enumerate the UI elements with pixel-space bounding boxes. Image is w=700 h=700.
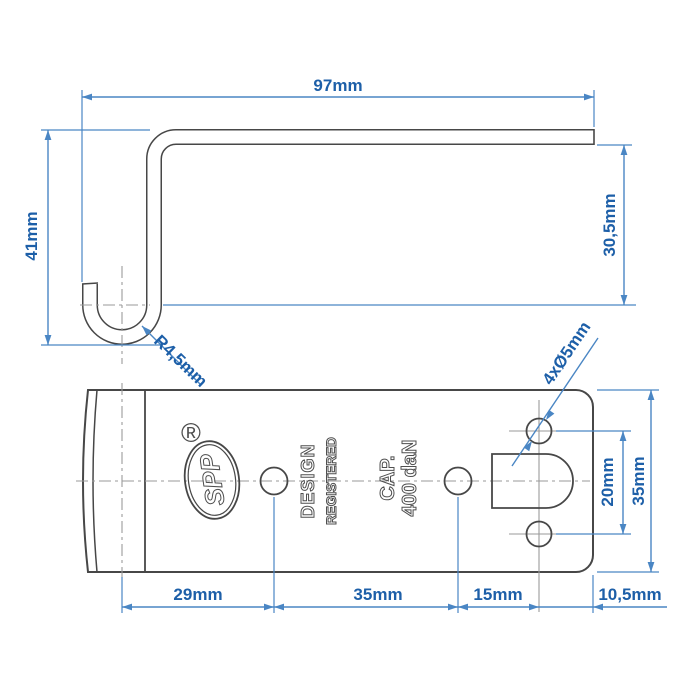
dim-bottom-chain: 29mm 35mm 15mm 10,5mm <box>122 497 667 613</box>
dim-35mm-bottom-label: 35mm <box>353 585 402 604</box>
engraving-cap: CAP. <box>377 455 399 500</box>
dim-r4-5mm-label: R4,5mm <box>150 331 211 391</box>
technical-drawing: 97mm 41mm 30,5mm R4,5mm <box>0 0 700 700</box>
dim-r4-5mm: R4,5mm <box>140 324 211 391</box>
side-view: 97mm 41mm 30,5mm R4,5mm <box>22 76 636 391</box>
hook-profile-outline <box>90 137 594 337</box>
drawing-canvas: 97mm 41mm 30,5mm R4,5mm <box>0 0 700 700</box>
hook-profile-core <box>90 137 594 337</box>
spp-logo-text: SPP <box>193 452 230 508</box>
dim-35mm-right-label: 35mm <box>629 456 648 505</box>
dim-15mm-label: 15mm <box>473 585 522 604</box>
hook-tip-edge <box>82 283 98 284</box>
engraving-capacity: 400 daN <box>399 440 421 517</box>
spp-logo: SPP <box>180 438 244 523</box>
engraving-design: DESIGN <box>298 443 318 518</box>
registered-symbol: ® <box>181 418 201 448</box>
dim-29mm-label: 29mm <box>173 585 222 604</box>
engraving-registered: REGISTERED <box>324 437 339 525</box>
plan-view: SPP ® DESIGN REGISTERED CAP. 400 daN 4xØ… <box>76 318 667 613</box>
dim-4xo5mm-label: 4xØ5mm <box>539 318 595 388</box>
dim-10-5mm-label: 10,5mm <box>598 585 661 604</box>
dim-41mm-label: 41mm <box>22 211 41 260</box>
dim-30-5mm: 30,5mm <box>163 145 636 305</box>
dim-97mm-label: 97mm <box>313 76 362 95</box>
dim-30-5mm-label: 30,5mm <box>600 193 619 256</box>
dim-20mm-label: 20mm <box>598 457 617 506</box>
